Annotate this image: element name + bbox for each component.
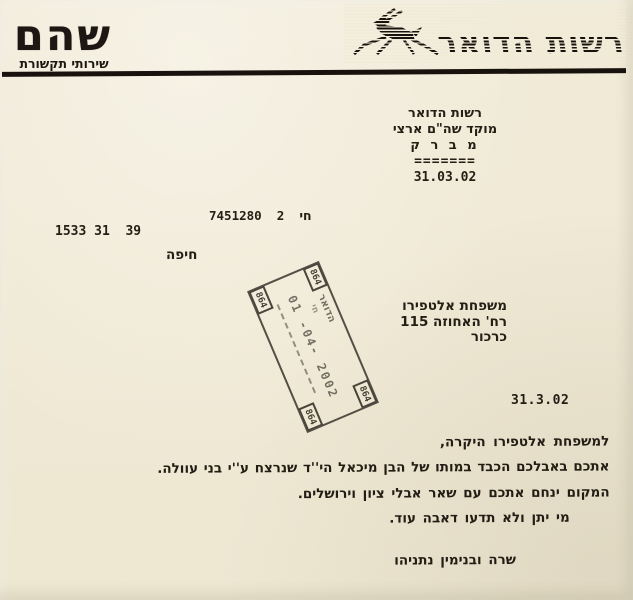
telegram-heading: רשות הדואר מוקד שה"ם ארצי מ ב ר ק ======… [378, 106, 512, 186]
telegram-org: רשות הדואר [378, 106, 512, 122]
letter-body-line: מי יתן ולא תדעו דאבה עוד. [389, 510, 570, 527]
telegram-document: שהם שירותי תקשורת רשות הדואר רשות הדואר … [0, 0, 633, 600]
recipient-street: רח' האחוזה 115 [400, 315, 507, 331]
recipient-city: כרכור [400, 330, 507, 346]
letter-body-line: המקום ינחם אתכם עם שאר אבלי ציון וירושלי… [298, 484, 610, 502]
shoham-logo-subtitle: שירותי תקשורת [16, 56, 112, 71]
telegram-underline: ======= [378, 154, 512, 170]
stamp-date: 01 -04- 2002 [277, 275, 348, 419]
telegram-date: 31.03.02 [378, 170, 512, 186]
letter-signature: שרה ובנימין נתניהו [394, 552, 516, 569]
shoham-logo: שהם [16, 14, 112, 58]
letter-body-line: אתכם באבלכם הכבד במותו של הבן מיכאל הי''… [157, 458, 609, 476]
telegram-type: מ ב ר ק [378, 138, 512, 154]
postmark-stamp: 864 864 864 864 הדואר חי 01 -04- 2002 [247, 261, 379, 433]
origin-city: חיפה [166, 247, 197, 263]
stamp-corner-number: 864 [248, 285, 273, 315]
leaping-deer-icon [350, 6, 445, 60]
letter-salutation: למשפחת אלטפירו היקרה, [440, 433, 610, 450]
recipient-name: משפחת אלטפירו [400, 299, 507, 315]
reference-number-line: חי 2 7451280 [209, 208, 312, 223]
postal-authority-title: רשות הדואר [436, 28, 627, 59]
postal-authority-logo: רשות הדואר [346, 4, 624, 62]
routing-code: 1533 31 39 [55, 224, 141, 239]
telegram-center: מוקד שה"ם ארצי [378, 122, 512, 138]
stamp-corner-number: 864 [298, 402, 323, 432]
letter-date: 31.3.02 [511, 393, 569, 408]
stamp-corner-number: 864 [352, 379, 377, 409]
recipient-address: משפחת אלטפירו רח' האחוזה 115 כרכור [400, 299, 507, 346]
stamp-corner-number: 864 [303, 262, 328, 292]
